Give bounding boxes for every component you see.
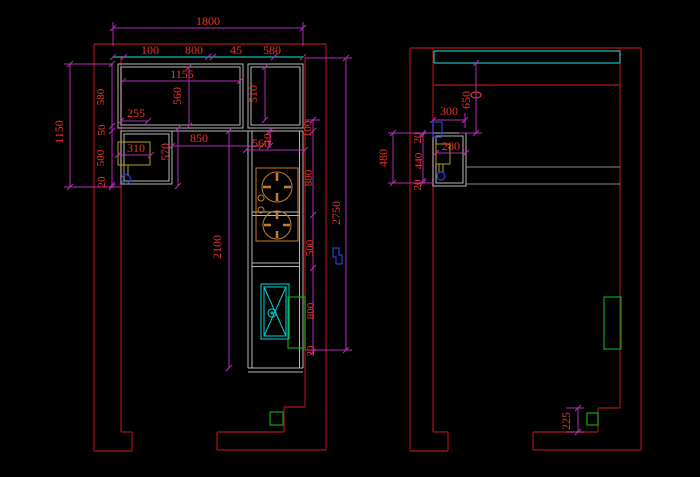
dim-row-800: 800: [185, 43, 203, 57]
dim-row-45: 45: [230, 43, 242, 57]
dim-570: 570: [158, 143, 172, 161]
cad-viewport: 1800 100 800 45 580 1155 560 510 255 115…: [0, 0, 700, 477]
gas-valve-icon: [122, 175, 131, 184]
dim-1155: 1155: [170, 67, 194, 81]
gas-stove: [256, 168, 298, 241]
stove-knob-top: [258, 195, 264, 201]
dim-row-100: 100: [141, 43, 159, 57]
dim-850: 850: [190, 131, 208, 145]
burner-pan-supports: [263, 173, 291, 238]
dim-650: 650: [459, 91, 473, 109]
dim-right-500: 500: [304, 239, 316, 256]
dim-1800: 1800: [196, 14, 220, 28]
dim-left-20-top: 20: [412, 132, 424, 144]
sink-drain-dot: [271, 312, 273, 314]
right-section: 650 300 280 20 440 20 480 225: [376, 48, 641, 451]
dim-10: 10: [262, 133, 274, 145]
dim-stack-580: 580: [95, 88, 107, 105]
left-plan-cabinets: [118, 64, 303, 372]
cad-canvas: 1800 100 800 45 580 1155 560 510 255 115…: [0, 0, 700, 477]
dim-300: 300: [440, 104, 458, 118]
dim-280: 280: [442, 139, 460, 153]
service-box-wall-right: [604, 297, 621, 349]
dim-2100: 2100: [210, 235, 224, 259]
dim-2750: 2750: [329, 201, 343, 225]
dim-310: 310: [127, 141, 145, 155]
dim-left-440: 440: [413, 152, 425, 169]
gas-valve-right-icon: [437, 172, 445, 180]
countertop-lines: [466, 167, 620, 184]
dim-right-20: 20: [305, 345, 317, 357]
dim-225: 225: [559, 412, 573, 430]
dim-510: 510: [246, 85, 260, 103]
dim-480: 480: [376, 149, 390, 167]
dim-stack-50: 50: [96, 124, 108, 136]
service-box-door-left: [270, 412, 283, 425]
right-section-dimension-ticks: [390, 60, 581, 435]
socket-box-icon: [433, 122, 442, 137]
ceiling-band: [434, 51, 620, 63]
dim-row-580: 580: [263, 43, 281, 57]
dim-stack-20: 20: [96, 176, 108, 188]
dim-right-800-lower: 800: [305, 302, 317, 319]
dim-right-100: 100: [302, 120, 314, 137]
dim-255: 255: [127, 106, 145, 120]
service-box-step-right: [587, 413, 598, 425]
service-box-sink: [288, 297, 305, 348]
switch-symbol-icon: [333, 248, 342, 264]
dim-stack-500: 500: [95, 149, 107, 166]
dim-1150: 1150: [52, 120, 66, 144]
dim-right-800-upper: 800: [303, 169, 315, 186]
dim-560-upper: 560: [170, 87, 184, 105]
left-plan: 1800 100 800 45 580 1155 560 510 255 115…: [52, 14, 352, 451]
dim-left-20-bottom: 20: [412, 179, 424, 191]
sink-cross-lines: [264, 287, 286, 336]
right-section-dimension-lines: [388, 63, 584, 432]
sink: [261, 284, 289, 339]
